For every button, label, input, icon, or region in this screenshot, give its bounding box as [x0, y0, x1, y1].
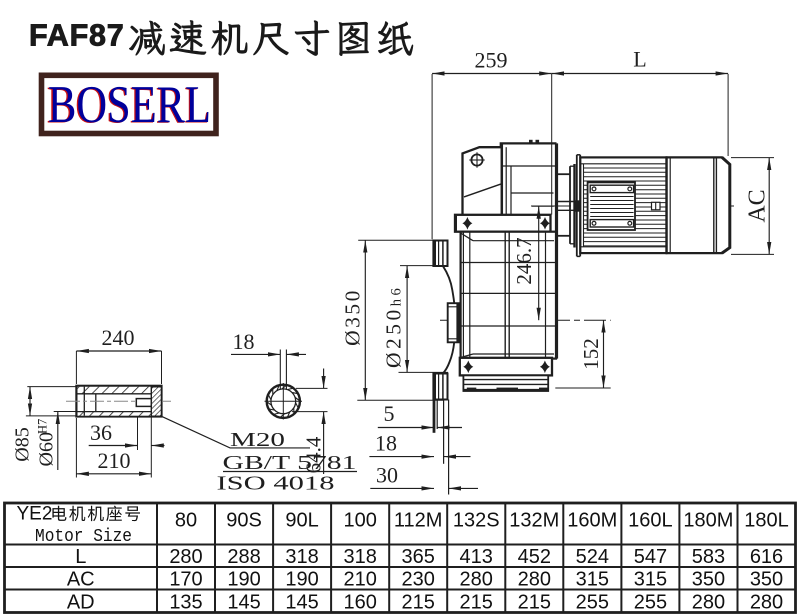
svg-text:Motor Size: Motor Size	[35, 527, 132, 547]
svg-text:L: L	[75, 546, 86, 568]
svg-text:AC: AC	[745, 189, 771, 222]
svg-text:547: 547	[634, 546, 667, 568]
svg-text:280: 280	[169, 546, 202, 568]
svg-text:FAF87: FAF87	[29, 19, 125, 53]
svg-text:Ø60: Ø60	[36, 432, 58, 466]
svg-text:152: 152	[579, 338, 603, 370]
svg-text:259: 259	[475, 47, 508, 72]
svg-text:215: 215	[460, 591, 493, 613]
svg-text:BOSERL: BOSERL	[48, 76, 211, 134]
svg-text:318: 318	[285, 546, 318, 568]
svg-text:30: 30	[376, 463, 398, 488]
svg-text:230: 230	[402, 569, 435, 591]
svg-text:AC: AC	[67, 569, 95, 591]
svg-text:112M: 112M	[394, 510, 443, 532]
svg-text:AD: AD	[67, 591, 95, 613]
svg-text:18: 18	[233, 329, 255, 354]
svg-text:315: 315	[634, 569, 667, 591]
svg-text:L: L	[633, 47, 646, 72]
svg-text:583: 583	[692, 546, 725, 568]
svg-text:18: 18	[375, 431, 397, 456]
svg-text:M20: M20	[230, 429, 285, 451]
svg-text:255: 255	[634, 591, 667, 613]
svg-text:ISO 4018: ISO 4018	[217, 473, 335, 495]
svg-text:100: 100	[344, 510, 377, 532]
svg-text:135: 135	[169, 591, 202, 613]
svg-text:180L: 180L	[744, 510, 789, 532]
svg-text:210: 210	[344, 569, 377, 591]
svg-text:240: 240	[102, 325, 135, 350]
svg-text:365: 365	[402, 546, 435, 568]
svg-text:215: 215	[402, 591, 435, 613]
svg-text:160M: 160M	[567, 510, 617, 532]
svg-text:Ø85: Ø85	[12, 427, 34, 461]
svg-text:YE2: YE2	[17, 504, 53, 525]
svg-text:280: 280	[750, 591, 783, 613]
svg-text:90L: 90L	[285, 510, 318, 532]
svg-text:170: 170	[169, 569, 202, 591]
svg-text:190: 190	[285, 569, 318, 591]
svg-text:190: 190	[227, 569, 260, 591]
svg-text:180M: 180M	[683, 510, 733, 532]
svg-text:160L: 160L	[628, 510, 673, 532]
svg-text:315: 315	[576, 569, 609, 591]
svg-text:132M: 132M	[509, 510, 559, 532]
svg-text:280: 280	[518, 569, 551, 591]
svg-text:246.7: 246.7	[512, 237, 536, 284]
svg-text:5: 5	[384, 401, 395, 426]
svg-text:524: 524	[576, 546, 609, 568]
svg-text:Ø350: Ø350	[341, 288, 365, 346]
svg-text:288: 288	[227, 546, 260, 568]
svg-text:413: 413	[460, 546, 493, 568]
svg-text:64.4: 64.4	[302, 436, 326, 473]
svg-text:452: 452	[518, 546, 551, 568]
svg-text:132S: 132S	[453, 510, 500, 532]
svg-text:215: 215	[518, 591, 551, 613]
svg-text:145: 145	[285, 591, 318, 613]
svg-text:145: 145	[227, 591, 260, 613]
svg-text:350: 350	[692, 569, 725, 591]
svg-text:616: 616	[750, 546, 783, 568]
svg-text:GB/T 5781: GB/T 5781	[223, 452, 357, 474]
svg-text:280: 280	[692, 591, 725, 613]
svg-text:36: 36	[90, 420, 112, 445]
svg-text:318: 318	[344, 546, 377, 568]
svg-text:80: 80	[175, 510, 197, 532]
svg-text:255: 255	[576, 591, 609, 613]
svg-text:280: 280	[460, 569, 493, 591]
svg-text:160: 160	[344, 591, 377, 613]
svg-text:H7: H7	[36, 419, 50, 434]
svg-text:90S: 90S	[226, 510, 262, 532]
svg-text:350: 350	[750, 569, 783, 591]
svg-text:210: 210	[98, 448, 131, 473]
